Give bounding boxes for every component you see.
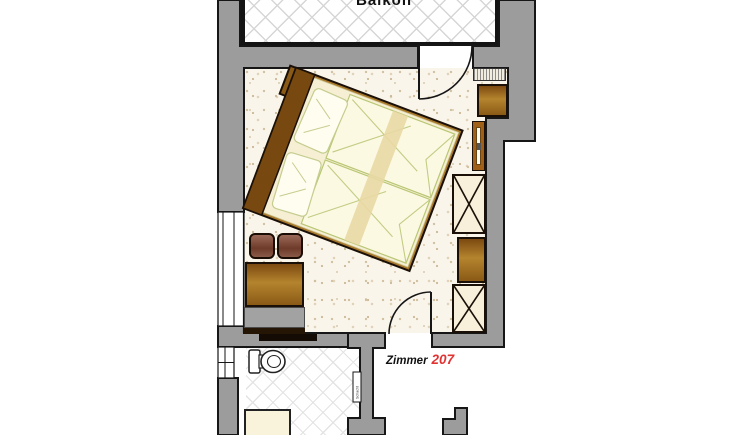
balcony-door — [419, 46, 472, 99]
plan-linework: Schacht — [0, 0, 754, 435]
room-number: 207 — [432, 352, 455, 367]
wall-stub-corridor — [443, 408, 467, 435]
sideboard — [244, 307, 305, 328]
wardrobe-lower — [452, 284, 486, 333]
wardrobe-upper — [452, 174, 486, 234]
tv-mount — [477, 143, 481, 150]
floor-plan: Schacht Balkon Zimmer207 — [0, 0, 754, 435]
dresser — [457, 237, 486, 283]
entry-door — [389, 292, 431, 334]
wardrobe-x-icon — [454, 286, 484, 331]
shower — [245, 410, 290, 435]
window-bathroom — [218, 347, 234, 378]
window-bedroom — [218, 212, 244, 333]
toilet — [249, 350, 285, 373]
stool-left — [249, 233, 275, 259]
room-number-label: Zimmer207 — [386, 352, 454, 367]
sliding-door-bar — [259, 334, 317, 341]
wardrobe-x-icon — [454, 176, 484, 232]
radiator — [473, 68, 506, 81]
shaft-marker: Schacht — [353, 372, 361, 402]
table — [245, 262, 304, 307]
tv-panel — [472, 121, 485, 171]
minibar-cabinet — [477, 84, 508, 117]
shaft-label: Schacht — [356, 386, 360, 399]
balcony-label: Balkon — [342, 0, 426, 9]
wall-bathroom-left — [218, 378, 238, 435]
room-word: Zimmer — [386, 355, 428, 367]
stool-right — [277, 233, 303, 259]
